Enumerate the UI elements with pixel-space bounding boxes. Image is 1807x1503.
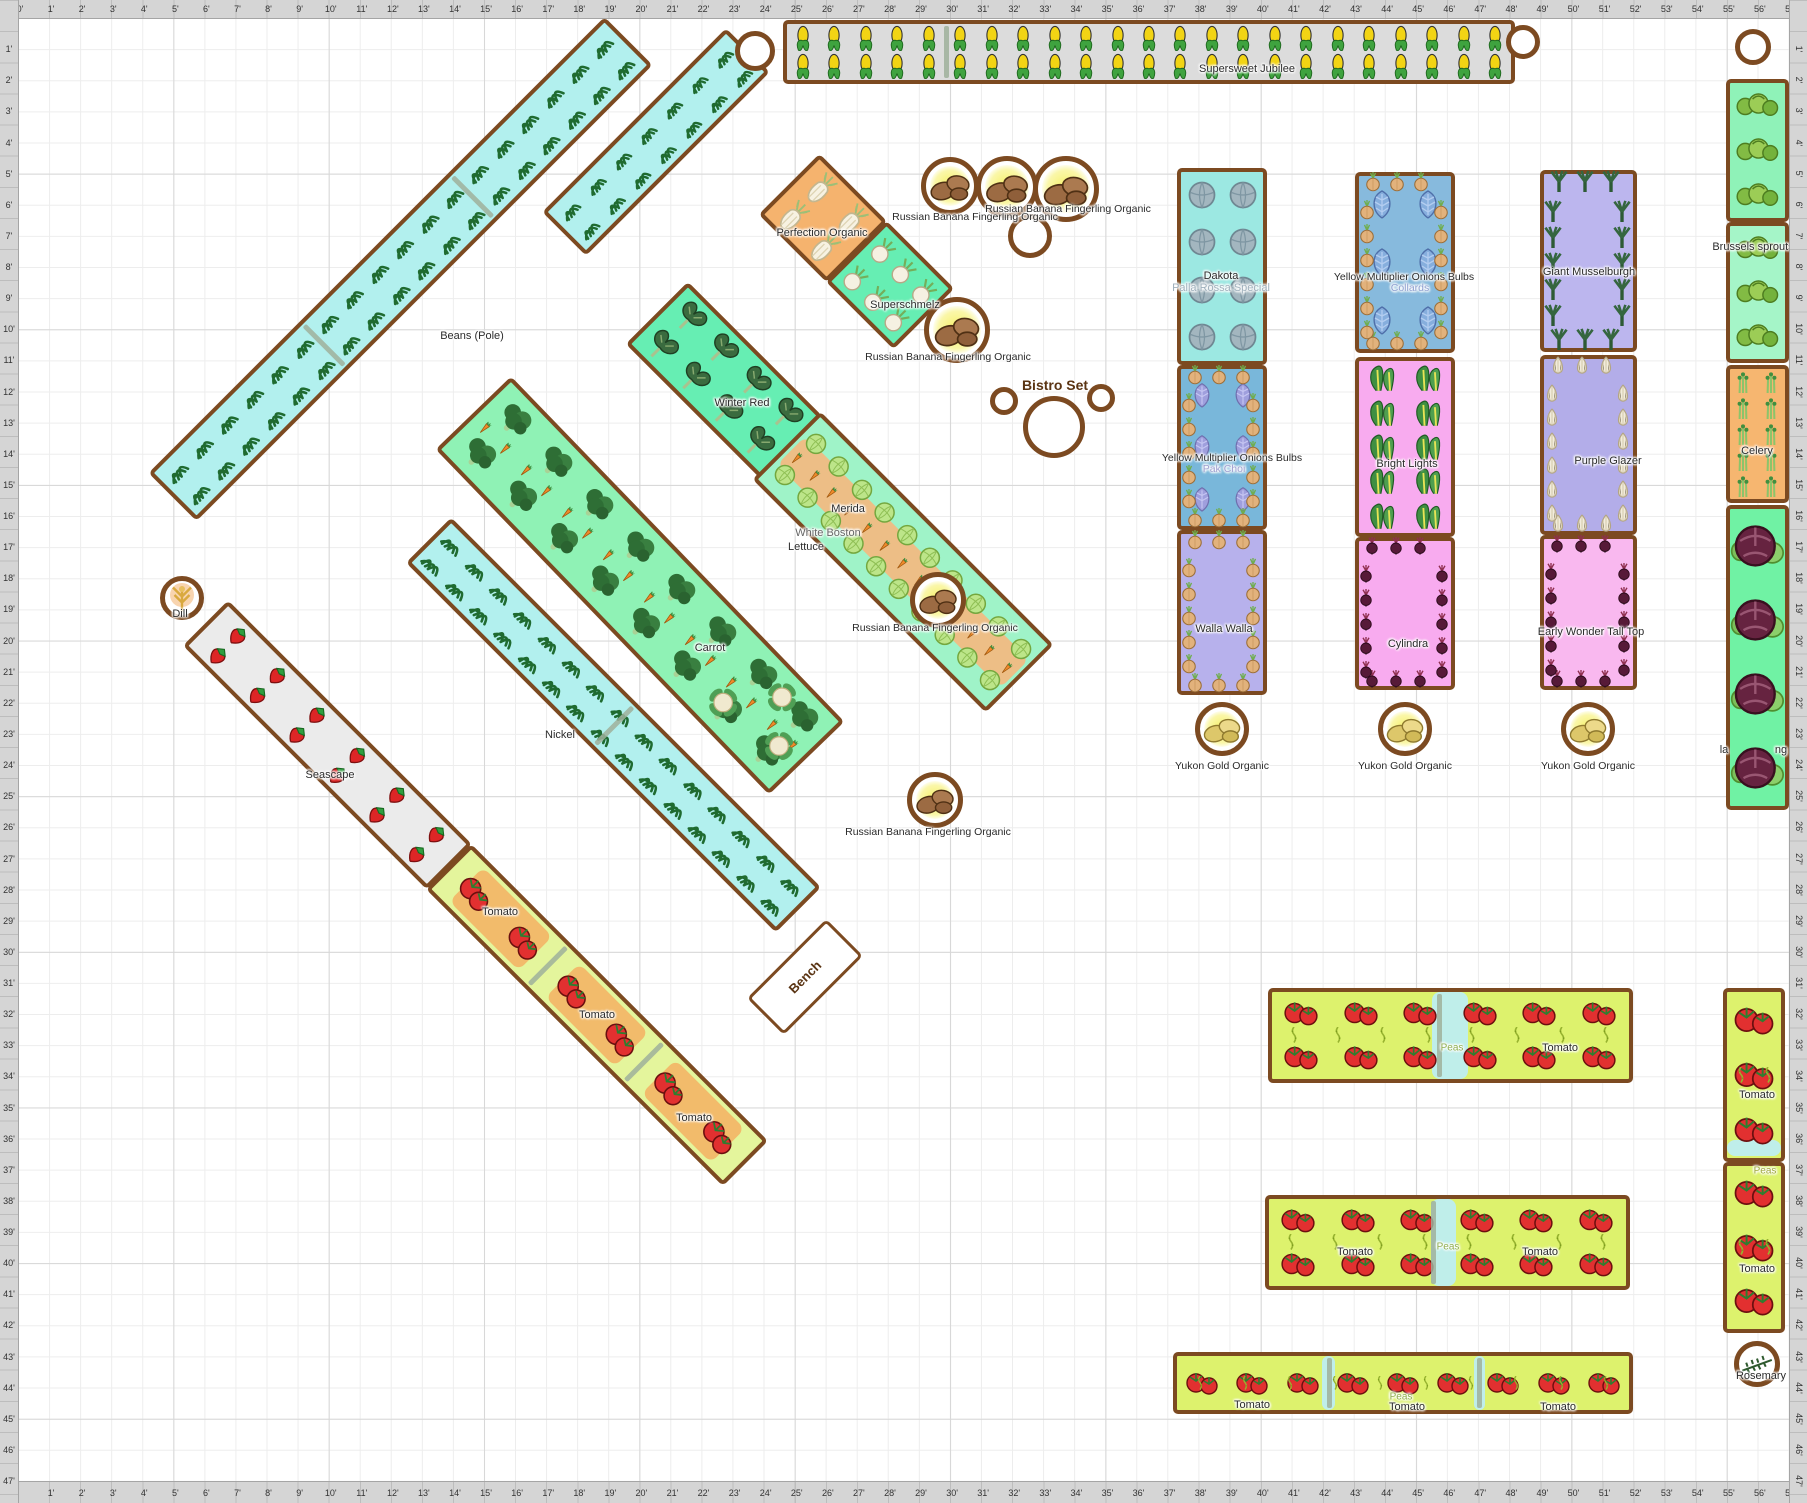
plant-label: Palla Rossa Special (1172, 282, 1270, 294)
ruler-label-y: 39' (1794, 1226, 1804, 1238)
plant-label: Supersweet Jubilee (1199, 63, 1295, 75)
garlic-icon (1548, 355, 1568, 375)
ruler-label-y: 31' (3, 978, 15, 988)
broccoli-icon (489, 394, 540, 445)
ruler-label-x: 7' (234, 1488, 241, 1498)
ruler-label-x: 29' (915, 4, 927, 14)
bed-onion-yellow-multiplier-1[interactable] (1177, 365, 1267, 530)
peaVine-icon (1733, 1067, 1749, 1083)
beet-icon (1357, 565, 1375, 583)
celery-icon (1760, 371, 1782, 393)
onion-icon (1357, 248, 1377, 268)
beanTuft-icon (623, 160, 657, 194)
ruler-label-y: 34' (3, 1071, 15, 1081)
ruler-label-y: 16' (3, 511, 15, 521)
potato-yukon-gold[interactable] (1378, 702, 1432, 756)
ruler-label-y: 10' (3, 324, 15, 334)
bed-celery[interactable] (1726, 365, 1789, 503)
ruler-label-y: 21' (3, 667, 15, 677)
ruler-label-x: 47' (1474, 1488, 1486, 1498)
beanTuft-icon (682, 814, 719, 851)
corn-icon (884, 25, 910, 51)
beanTuft-icon (605, 49, 642, 86)
broccoli-icon (700, 682, 751, 733)
corn-icon (1356, 25, 1382, 51)
chard-icon (1413, 501, 1443, 531)
tomatoPair-icon (1436, 1366, 1470, 1400)
beanTuft-icon (680, 65, 714, 99)
beanTuft-icon (579, 166, 613, 200)
carrot-icon (474, 413, 499, 438)
ruler-label-y: 37' (3, 1165, 15, 1175)
ruler-label-x: 37' (1164, 1488, 1176, 1498)
broccoli-icon (495, 470, 546, 521)
onion-icon (1357, 296, 1377, 316)
radicchio-icon (1228, 322, 1258, 352)
radicchio-icon (1228, 180, 1258, 210)
strawberry-icon (419, 817, 453, 851)
carrot-icon (494, 434, 519, 459)
ruler-label-x: 35' (1102, 1488, 1114, 1498)
ruler-label-x: 49' (1537, 1488, 1549, 1498)
potato-yukon-gold[interactable] (1561, 702, 1615, 756)
bed-garlic-purple-glazer[interactable] (1540, 355, 1637, 535)
bed-radicchio-dakota[interactable] (1177, 168, 1267, 365)
carrot-icon (658, 604, 683, 629)
ruler-label-y: 16' (1794, 510, 1804, 522)
celery-icon (1760, 475, 1782, 497)
plant-label: Perfection Organic (776, 227, 867, 239)
peaVine-icon (1760, 1067, 1776, 1083)
beanTuft-icon (604, 141, 638, 175)
bed-beet-early-wonder[interactable] (1540, 535, 1637, 690)
corn-icon (1167, 25, 1193, 51)
ruler-label-y: 13' (3, 418, 15, 428)
beanTuft-icon (409, 202, 446, 239)
ruler-label-x: 17' (542, 4, 554, 14)
bed-beet-cylindra[interactable] (1355, 537, 1455, 690)
beanTuft-icon (655, 90, 689, 124)
ruler-label-x: 12' (387, 4, 399, 14)
ruler-label-y: 22' (3, 698, 15, 708)
cauliflower-icon (758, 725, 800, 767)
plant-label: Tomato (482, 906, 518, 918)
ruler-label-x: 26' (822, 4, 834, 14)
bed-divider (1327, 1358, 1332, 1408)
beanTuft-icon (439, 571, 476, 608)
beet-icon (1548, 535, 1566, 553)
beanTuft-icon (459, 551, 496, 588)
ruler-label-y: 29' (3, 916, 15, 926)
beanTuft-icon (180, 474, 217, 511)
ruler-label-y: 47' (3, 1476, 15, 1486)
tomatoPair-icon (1185, 1366, 1219, 1400)
ruler-label-x: 32' (1008, 4, 1020, 14)
ruler-label-x: 28' (884, 4, 896, 14)
plant-label: Lettuce (788, 541, 824, 553)
carrot-icon (760, 710, 785, 735)
ruler-label-y: 32' (3, 1009, 15, 1019)
bed-divider (302, 324, 345, 367)
ruler-label-y: 43' (3, 1352, 15, 1362)
bed-divider (944, 26, 949, 78)
ruler-label-x: 39' (1226, 4, 1238, 14)
corn-icon (1010, 53, 1036, 79)
corn-icon (1419, 53, 1445, 79)
ruler-label-x: 38' (1195, 1488, 1207, 1498)
ruler-label-y: 6' (6, 200, 13, 210)
celery-icon (1732, 397, 1754, 419)
beanTuft-icon (699, 84, 733, 118)
garlic-icon (1542, 407, 1562, 427)
plant-label: ng (1775, 744, 1787, 756)
broccoli-icon (571, 479, 622, 530)
ruler-label-y: 25' (3, 791, 15, 801)
beanTuft-icon (507, 600, 544, 637)
ruler-label-x: 1' (48, 1488, 55, 1498)
strawberry-icon (201, 639, 235, 673)
plant-label: Yukon Gold Organic (1358, 760, 1452, 772)
ruler-label-x: 23' (729, 1488, 741, 1498)
ruler-label-x: 6' (203, 1488, 210, 1498)
ruler-label-x: 5' (172, 4, 179, 14)
bistro-table[interactable] (1023, 396, 1085, 458)
plant-label: Peas (1437, 1242, 1460, 1253)
ruler-label-y: 23' (3, 729, 15, 739)
beanTuft-icon (534, 77, 571, 114)
corn-icon (1388, 25, 1414, 51)
onion-icon (1233, 530, 1253, 550)
ruler-label-y: 20' (3, 636, 15, 646)
celery-icon (1760, 423, 1782, 445)
ruler-label-x: 49' (1537, 4, 1549, 14)
ruler-label-x: 22' (698, 1488, 710, 1498)
ruler-label-x: 18' (573, 4, 585, 14)
planter-circle[interactable] (735, 31, 775, 71)
ruler-label-x: 51' (1599, 4, 1611, 14)
corn-icon (1105, 25, 1131, 51)
beet-icon (1363, 670, 1381, 688)
chard-icon (1367, 363, 1397, 393)
tomatoPair-icon (1733, 1226, 1775, 1268)
kohlrabi-icon (837, 260, 874, 297)
collard-icon (1413, 189, 1443, 219)
beanTuft-icon (505, 149, 542, 186)
onion-icon (1411, 331, 1431, 351)
beanTuft-icon (629, 721, 666, 758)
ruler-label-x: 23' (729, 4, 741, 14)
ruler-label-x: 46' (1443, 4, 1455, 14)
tomatoPair-icon (1340, 1202, 1376, 1238)
beanTuft-icon (649, 135, 683, 169)
ruler-label-x: 8' (265, 1488, 272, 1498)
garlic-icon (1613, 431, 1633, 451)
ruler-label-x: 8' (265, 4, 272, 14)
ruler-label-x: 35' (1102, 4, 1114, 14)
cauliflower-icon (761, 676, 803, 718)
beanTuft-icon (430, 224, 467, 261)
ruler-label-y: 2' (1794, 77, 1804, 84)
corn-icon (979, 53, 1005, 79)
ruler-label-y: 18' (1794, 572, 1804, 584)
carrot-icon (556, 498, 581, 523)
garlic-icon (1613, 407, 1633, 427)
leek-icon (1548, 328, 1570, 350)
kale-icon (702, 386, 750, 434)
corn-icon (853, 25, 879, 51)
ruler-label-y: 27' (1794, 853, 1804, 865)
beet-icon (1433, 613, 1451, 631)
plant-label: Superschmelz (870, 299, 940, 311)
potato-russian-banana[interactable] (910, 572, 966, 628)
potato-icon (932, 305, 982, 355)
ruler-label-y: 29' (1794, 915, 1804, 927)
beanTuft-icon (730, 862, 767, 899)
plant-label: Russian Banana Fingerling Organic (985, 203, 1151, 215)
onion-icon (1179, 489, 1199, 509)
leek-icon (1611, 226, 1633, 248)
beanTuft-icon (415, 547, 452, 584)
ruler-label-y: 9' (6, 293, 13, 303)
beet-icon (1615, 659, 1633, 677)
beanTuft-icon (434, 177, 471, 214)
beet-icon (1357, 613, 1375, 631)
ruler-label-x: 45' (1412, 1488, 1424, 1498)
ruler-label-x: 56' (1754, 1488, 1766, 1498)
beanTuft-icon (553, 192, 587, 226)
chard-icon (1413, 363, 1443, 393)
bed-onion-walla-walla[interactable] (1177, 530, 1267, 695)
corn-icon (1167, 53, 1193, 79)
garlic-icon (1542, 383, 1562, 403)
potato-yukon-gold[interactable] (1195, 702, 1249, 756)
onion-icon (1185, 508, 1205, 528)
onion-icon (1243, 558, 1263, 578)
peaVine-icon (1372, 1234, 1388, 1250)
peaVine-icon (1554, 1376, 1568, 1390)
plant-label: Russian Banana Fingerling Organic (865, 351, 1031, 363)
plant-label: Tomato (1389, 1401, 1425, 1413)
ruler-label-y: 38' (3, 1196, 15, 1206)
ruler-label-x: 9' (296, 4, 303, 14)
broccoli-icon (530, 437, 581, 488)
bistro-chair[interactable] (990, 387, 1018, 415)
bed-cabbage-red[interactable] (1726, 505, 1789, 810)
peaVine-icon (1509, 1027, 1525, 1043)
onion-icon (1243, 489, 1263, 509)
ruler-label-y: 5' (1794, 170, 1804, 177)
beanTuft-icon (512, 644, 549, 681)
bed-tomato-right-1[interactable] (1723, 988, 1785, 1162)
ruler-label-x: 45' (1412, 4, 1424, 14)
onion-icon (1243, 417, 1263, 437)
plant-label: Collards (1391, 282, 1430, 294)
peaVine-icon (1419, 1376, 1433, 1390)
plant-label: Yukon Gold Organic (1175, 760, 1269, 772)
brussels-icon (1735, 83, 1779, 127)
ruler-label-x: 51' (1599, 1488, 1611, 1498)
broccoli-icon (652, 564, 703, 615)
beanTuft-icon (258, 353, 295, 390)
bed-leek-giant-musselburgh[interactable] (1540, 170, 1637, 352)
plant-label: Pak Choi (1203, 463, 1246, 475)
brussels-icon (1735, 270, 1779, 314)
broccoli-icon (611, 521, 662, 572)
beet-icon (1548, 670, 1566, 688)
redCabbage-icon (1730, 667, 1784, 721)
celery-icon (1732, 371, 1754, 393)
beanTuft-icon (774, 867, 811, 904)
ruler-label-x: 34' (1071, 1488, 1083, 1498)
ruler-label-y: 2' (6, 75, 13, 85)
ruler-label-y: 34' (1794, 1071, 1804, 1083)
planter-circle[interactable] (1735, 29, 1771, 65)
bed-tomato-right-2[interactable] (1723, 1162, 1785, 1333)
beet-icon (1615, 563, 1633, 581)
purpleLeaf-icon (1230, 486, 1256, 512)
bed-divider (593, 705, 633, 745)
broccoli-icon (577, 555, 628, 606)
plant-label: Tomato (1234, 1399, 1270, 1411)
plant-label: Tomato (1542, 1042, 1578, 1054)
ruler-label-y: 31' (1794, 977, 1804, 989)
ruler-label-x: 38' (1195, 4, 1207, 14)
onion-icon (1357, 320, 1377, 340)
ruler-label-x: 30' (946, 1488, 958, 1498)
leek-icon (1542, 304, 1564, 326)
beet-icon (1357, 637, 1375, 655)
ruler-label-x: 55' (1723, 1488, 1735, 1498)
broccoli-icon (775, 691, 826, 742)
peaVine-icon (1733, 1239, 1749, 1255)
chard-icon (1367, 466, 1397, 496)
ruler-label-x: 25' (791, 4, 803, 14)
leek-icon (1600, 328, 1622, 350)
potato-icon (928, 164, 972, 208)
garlic-icon (1542, 479, 1562, 499)
bistro-chair[interactable] (1087, 384, 1115, 412)
tomatoPair-icon (1587, 1366, 1621, 1400)
ruler-label-x: 54' (1692, 4, 1704, 14)
ruler-label-x: 41' (1288, 4, 1300, 14)
ruler-label-x: 11' (356, 1488, 367, 1498)
onion-icon (1431, 296, 1451, 316)
plant-label: Tomato (1540, 1401, 1576, 1413)
onion-icon (1185, 365, 1205, 385)
beet-icon (1615, 587, 1633, 605)
beanTuft-icon (333, 278, 370, 315)
potato-russian-banana[interactable] (921, 157, 979, 215)
ruler-label-y: 24' (3, 760, 15, 770)
bed-chard-bright-lights[interactable] (1355, 357, 1455, 537)
ruler-label-y: 36' (3, 1134, 15, 1144)
ruler-label-x: 20' (636, 1488, 648, 1498)
leek-icon (1548, 170, 1570, 192)
beanTuft-icon (384, 228, 421, 265)
onion-icon (1357, 200, 1377, 220)
ruler-label-x: 43' (1350, 1488, 1362, 1498)
bed-tomato-peas-h1[interactable] (1268, 988, 1633, 1083)
corn-icon (1136, 25, 1162, 51)
collard-icon (1367, 189, 1397, 219)
ruler-label-y: 4' (1794, 139, 1804, 146)
onion-icon (1233, 673, 1253, 693)
plant-label: White Boston (795, 527, 860, 539)
ruler-label-y: 45' (3, 1414, 15, 1424)
ruler-label-x: 42' (1319, 1488, 1331, 1498)
tomatoPair-icon (1486, 1366, 1520, 1400)
ruler-label-x: 28' (884, 1488, 896, 1498)
plant-label: Tomato (1337, 1246, 1373, 1258)
onion-icon (1179, 654, 1199, 674)
ruler-label-x: 15' (480, 1488, 492, 1498)
beanTuft-icon (556, 648, 593, 685)
planter-circle[interactable] (1506, 25, 1540, 59)
ruler-label-x: 36' (1133, 4, 1145, 14)
ruler-label-x: 18' (573, 1488, 585, 1498)
beet-icon (1357, 661, 1375, 679)
ruler-label-y: 30' (3, 947, 15, 957)
kohlrabi-icon (885, 253, 922, 290)
bed-brussels-sprouts-1[interactable] (1726, 79, 1789, 222)
leek-icon (1611, 278, 1633, 300)
tomatoPair-icon (1283, 995, 1319, 1031)
ruler-label-x: 44' (1381, 4, 1393, 14)
ruler-label-y: 8' (1794, 264, 1804, 271)
ruler-label-y: 12' (1794, 386, 1804, 398)
ruler-label-x: 13' (418, 4, 430, 14)
corn-icon (916, 25, 942, 51)
beanTuft-icon (459, 152, 496, 189)
celery-icon (1760, 397, 1782, 419)
onion-icon (1363, 331, 1383, 351)
beanTuft-icon (559, 52, 596, 89)
leek-icon (1574, 170, 1596, 192)
plant-label: la (1720, 744, 1729, 756)
ruler-label-y: 14' (1794, 448, 1804, 460)
purpleLeaf-icon (1230, 382, 1256, 408)
bed-corn-supersweet-jubilee[interactable] (783, 20, 1515, 84)
beanTuft-icon (580, 74, 617, 111)
ruler-label-y: 14' (3, 449, 15, 459)
ruler-label-x: 50' (1568, 1488, 1580, 1498)
corn-icon (1073, 53, 1099, 79)
bed-divider (451, 175, 494, 218)
ruler-label-y: 40' (1794, 1257, 1804, 1269)
kale-icon (670, 354, 718, 402)
corn-icon (884, 53, 910, 79)
onion-icon (1243, 465, 1263, 485)
radicchio-icon (1228, 227, 1258, 257)
ruler-label-x: 16' (511, 1488, 523, 1498)
tomatoPair-icon (1733, 1172, 1775, 1214)
plant-label: Peas (1441, 1043, 1464, 1054)
ruler-label-x: 14' (449, 4, 461, 14)
beanTuft-icon (255, 399, 292, 436)
ruler-label-y: 47' (1794, 1475, 1804, 1487)
ruler-label-x: 16' (511, 4, 523, 14)
purpleLeaf-icon (1189, 382, 1215, 408)
bed-onion-yellow-multiplier-2[interactable] (1355, 172, 1455, 353)
ruler-label-x: 10' (325, 4, 337, 14)
potatoYellow-icon (1385, 709, 1426, 750)
potato-russian-banana[interactable] (907, 772, 963, 828)
ruler-label-x: 56' (1754, 4, 1766, 14)
tomatoPair-icon (1336, 1366, 1370, 1400)
celery-icon (1732, 423, 1754, 445)
peaVine-icon (1193, 1376, 1207, 1390)
corn-icon (916, 53, 942, 79)
